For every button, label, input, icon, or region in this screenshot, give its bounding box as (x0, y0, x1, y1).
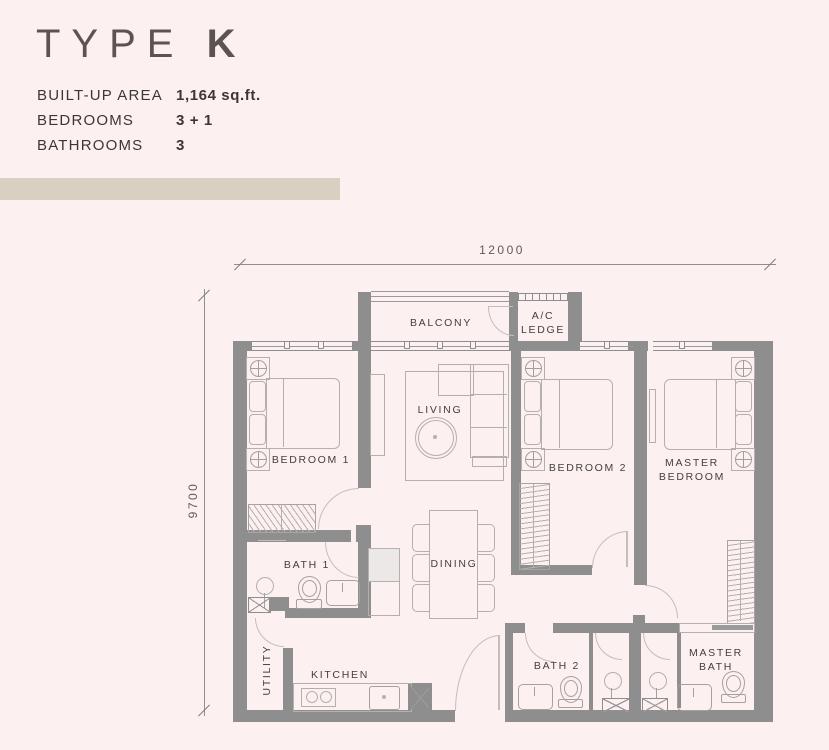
shower-door-arc (643, 633, 670, 660)
window-divider (604, 341, 610, 349)
room-label-acledge-1: A/C (532, 310, 555, 322)
wardrobe-divider (281, 505, 282, 530)
shaft-box (642, 698, 668, 713)
room-label-master-bedroom-1: MASTER (665, 457, 719, 469)
window-divider (318, 341, 324, 349)
sink (677, 684, 712, 711)
coffee-table-center (433, 435, 437, 439)
faucet-icon (342, 583, 343, 592)
burner-icon (306, 691, 318, 703)
toilet-base (721, 694, 746, 703)
room-label-living: LIVING (418, 404, 463, 416)
dimension-line-left (204, 289, 205, 716)
wall-entry-right (505, 623, 513, 710)
lamp-icon (250, 360, 267, 377)
wall-bedroom2-master (634, 341, 647, 585)
sofa-body (470, 364, 509, 458)
dresser-top (712, 625, 753, 630)
room-label-bedroom1: BEDROOM 1 (272, 454, 350, 466)
bedroom2-door-leaf (626, 531, 628, 567)
room-label-dining: DINING (431, 558, 478, 570)
toilet-inner (726, 675, 741, 692)
wardrobe-master (727, 540, 755, 624)
shaft-box (602, 698, 630, 713)
bedroom1-door-arc (318, 488, 359, 529)
bath1-door-arc (325, 542, 359, 578)
toilet-inner (564, 680, 578, 697)
window-divider (404, 341, 410, 349)
headboard-cushion (249, 414, 266, 445)
sofa-ottoman (472, 456, 507, 467)
bed-fold-line (716, 379, 717, 448)
room-label-acledge-2: LEDGE (521, 324, 565, 336)
window-bedroom1 (252, 341, 352, 351)
toilet-base (296, 599, 322, 609)
lamp-icon (525, 360, 542, 377)
bed-bedroom2 (541, 379, 613, 450)
headboard-cushion (735, 381, 752, 412)
headboard-cushion (524, 414, 541, 445)
window-divider (470, 341, 476, 349)
lamp-icon (525, 451, 542, 468)
shaft-box (248, 597, 271, 613)
tv-console-master (649, 389, 656, 443)
dimension-height-label: 9700 (186, 482, 200, 519)
bed-bedroom1 (266, 378, 340, 449)
tv-console-living (370, 374, 385, 456)
room-label-master-bath-2: BATH (699, 661, 733, 673)
wall-bath2-shower (589, 633, 593, 710)
dining-chair (412, 554, 430, 582)
wall-acledge-bottom (509, 341, 580, 351)
faucet-icon (534, 687, 535, 696)
burner-icon (320, 691, 332, 703)
fridge (368, 548, 400, 582)
bed-fold-line (559, 379, 560, 448)
window-divider (284, 341, 290, 349)
lamp-icon (735, 360, 752, 377)
room-label-balcony: BALCONY (410, 317, 472, 329)
wall-shaft-piece (269, 597, 289, 611)
headboard-cushion (249, 381, 266, 412)
wall-outer-bottom-right (505, 710, 773, 722)
room-label-utility: UTILITY (261, 645, 273, 696)
wall-master-door-jamb (633, 615, 645, 633)
window-divider (437, 341, 443, 349)
entry-door-arc (455, 635, 500, 711)
shower-door-arc (595, 633, 622, 660)
bedroom2-door-arc (592, 531, 628, 568)
sofa-seat-line (470, 427, 507, 428)
lamp-icon (735, 451, 752, 468)
faucet-icon (382, 695, 386, 699)
wall-bath1-bottom (285, 608, 371, 618)
dimension-line-top (234, 264, 776, 265)
toilet-base (558, 699, 583, 708)
dining-chair (477, 584, 495, 612)
bed-master (664, 379, 736, 450)
shower-icon (649, 672, 667, 690)
wall-top-master-right (712, 341, 755, 351)
wall-top-bedroom1-left (233, 341, 252, 351)
headboard-cushion (524, 381, 541, 412)
dining-chair (477, 554, 495, 582)
wall-bath2-top (553, 623, 633, 633)
bath1-door-leaf (258, 540, 286, 541)
acledge-louvre (518, 293, 568, 301)
room-label-master-bath-1: MASTER (689, 647, 743, 659)
wall-utility-right (283, 648, 293, 710)
room-label-bath1: BATH 1 (284, 559, 330, 571)
master-door-arc (645, 585, 678, 618)
wall-bath2-top-stub (511, 623, 525, 633)
wardrobe-divider (533, 484, 534, 567)
wardrobe-bedroom2 (519, 483, 550, 570)
wardrobe-divider (740, 541, 741, 621)
room-label-kitchen: KITCHEN (311, 669, 369, 681)
room-label-master-bedroom-2: BEDROOM (659, 471, 725, 483)
wardrobe-bedroom1 (248, 504, 316, 533)
dining-chair (412, 584, 430, 612)
room-label-bath2: BATH 2 (534, 660, 580, 672)
toilet-inner (302, 580, 317, 597)
dimension-width-label: 12000 (479, 243, 525, 257)
entry-door-leaf (498, 635, 500, 710)
shower-icon (604, 672, 622, 690)
sink (326, 580, 360, 606)
balcony-railing (371, 291, 509, 302)
cabinet (368, 581, 400, 616)
window-divider (679, 341, 685, 349)
sofa-chaise (438, 364, 474, 396)
sink (518, 684, 553, 710)
faucet-icon (693, 688, 694, 697)
dining-chair (477, 524, 495, 552)
bath2-door-arc (525, 633, 554, 662)
floor-plan: 12000 9700 (0, 0, 829, 750)
shower-icon (256, 577, 274, 595)
wall-outer-right (754, 341, 773, 722)
room-label-bedroom2: BEDROOM 2 (549, 462, 627, 474)
balcony-door-arc (488, 307, 514, 336)
page: TYPE K BUILT-UP AREA1,164 sq.ft. BEDROOM… (0, 0, 829, 750)
wall-acledge-right (568, 292, 582, 341)
bed-fold-line (283, 378, 284, 447)
dining-chair (412, 524, 430, 552)
sofa-seat-line (470, 394, 507, 395)
wall-shower-divider (629, 633, 641, 710)
headboard-cushion (735, 414, 752, 445)
utility-door-arc (255, 618, 284, 647)
shaft-box (411, 687, 430, 709)
lamp-icon (250, 451, 267, 468)
